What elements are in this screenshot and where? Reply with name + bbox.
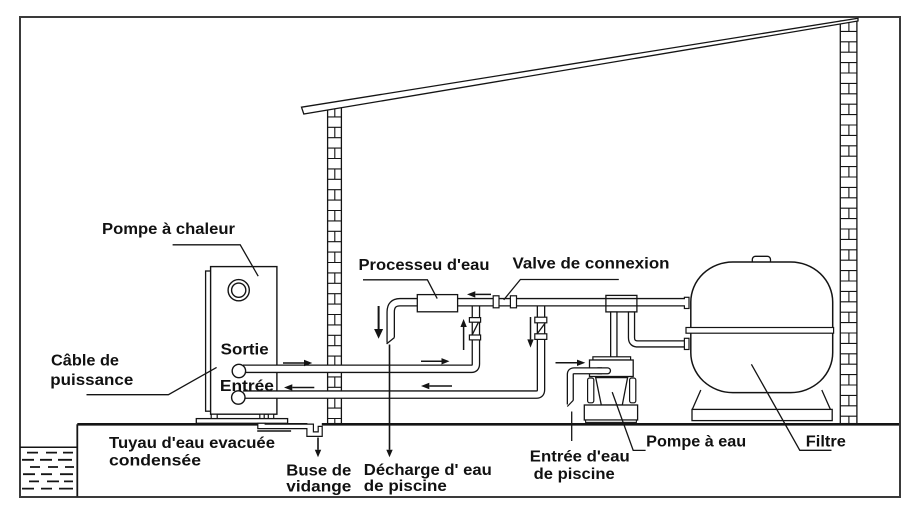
svg-text:Processeu d'eau: Processeu d'eau: [359, 257, 490, 274]
svg-text:puissance: puissance: [50, 372, 133, 389]
svg-text:Pompe à eau: Pompe à eau: [646, 433, 746, 450]
svg-text:Pompe à chaleur: Pompe à chaleur: [102, 221, 235, 238]
svg-text:de piscine: de piscine: [534, 466, 615, 483]
svg-text:Buse de: Buse de: [286, 462, 351, 479]
svg-text:Entrée: Entrée: [220, 378, 274, 395]
svg-text:Filtre: Filtre: [806, 433, 846, 450]
svg-text:vidange: vidange: [286, 479, 351, 496]
svg-text:Tuyau d'eau evacuée: Tuyau d'eau evacuée: [109, 435, 275, 452]
svg-text:Décharge d' eau: Décharge d' eau: [364, 462, 492, 479]
svg-text:Valve de connexion: Valve de connexion: [513, 255, 670, 272]
svg-text:Câble de: Câble de: [51, 352, 119, 369]
svg-text:de piscine: de piscine: [364, 478, 447, 495]
svg-text:Entrée d'eau: Entrée d'eau: [530, 449, 630, 466]
svg-text:condensée: condensée: [109, 453, 201, 470]
svg-text:Sortie: Sortie: [221, 342, 269, 359]
